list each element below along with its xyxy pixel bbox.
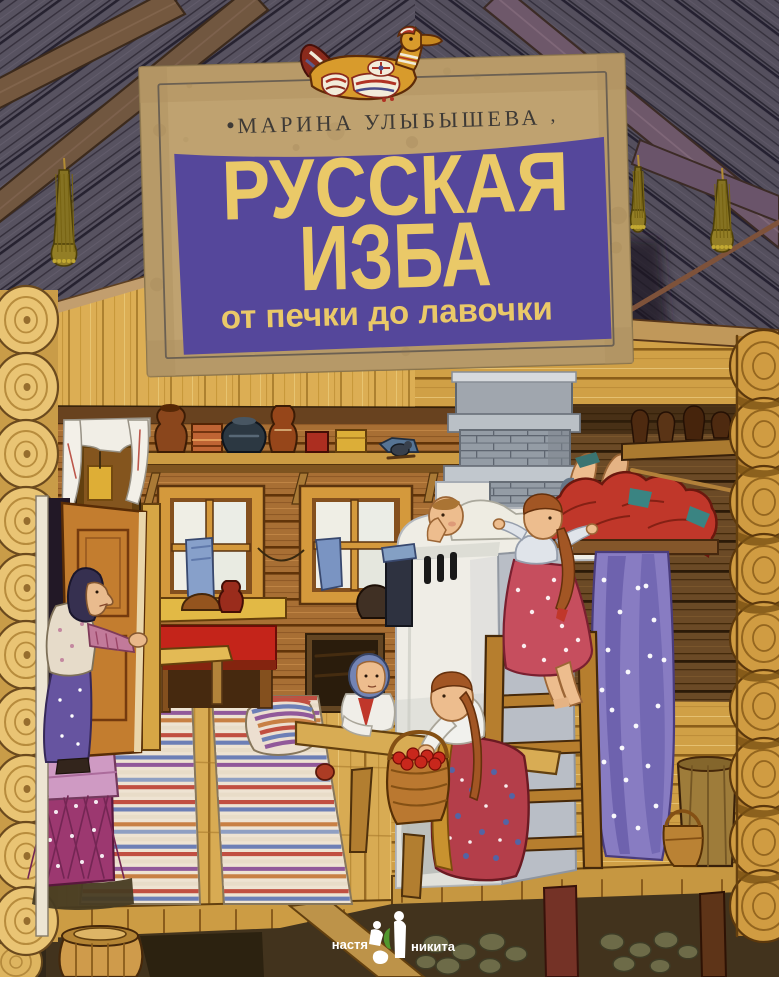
svg-text:настя: настя <box>332 937 368 952</box>
svg-text:никита: никита <box>411 939 456 954</box>
svg-text:‚: ‚ <box>549 104 556 126</box>
